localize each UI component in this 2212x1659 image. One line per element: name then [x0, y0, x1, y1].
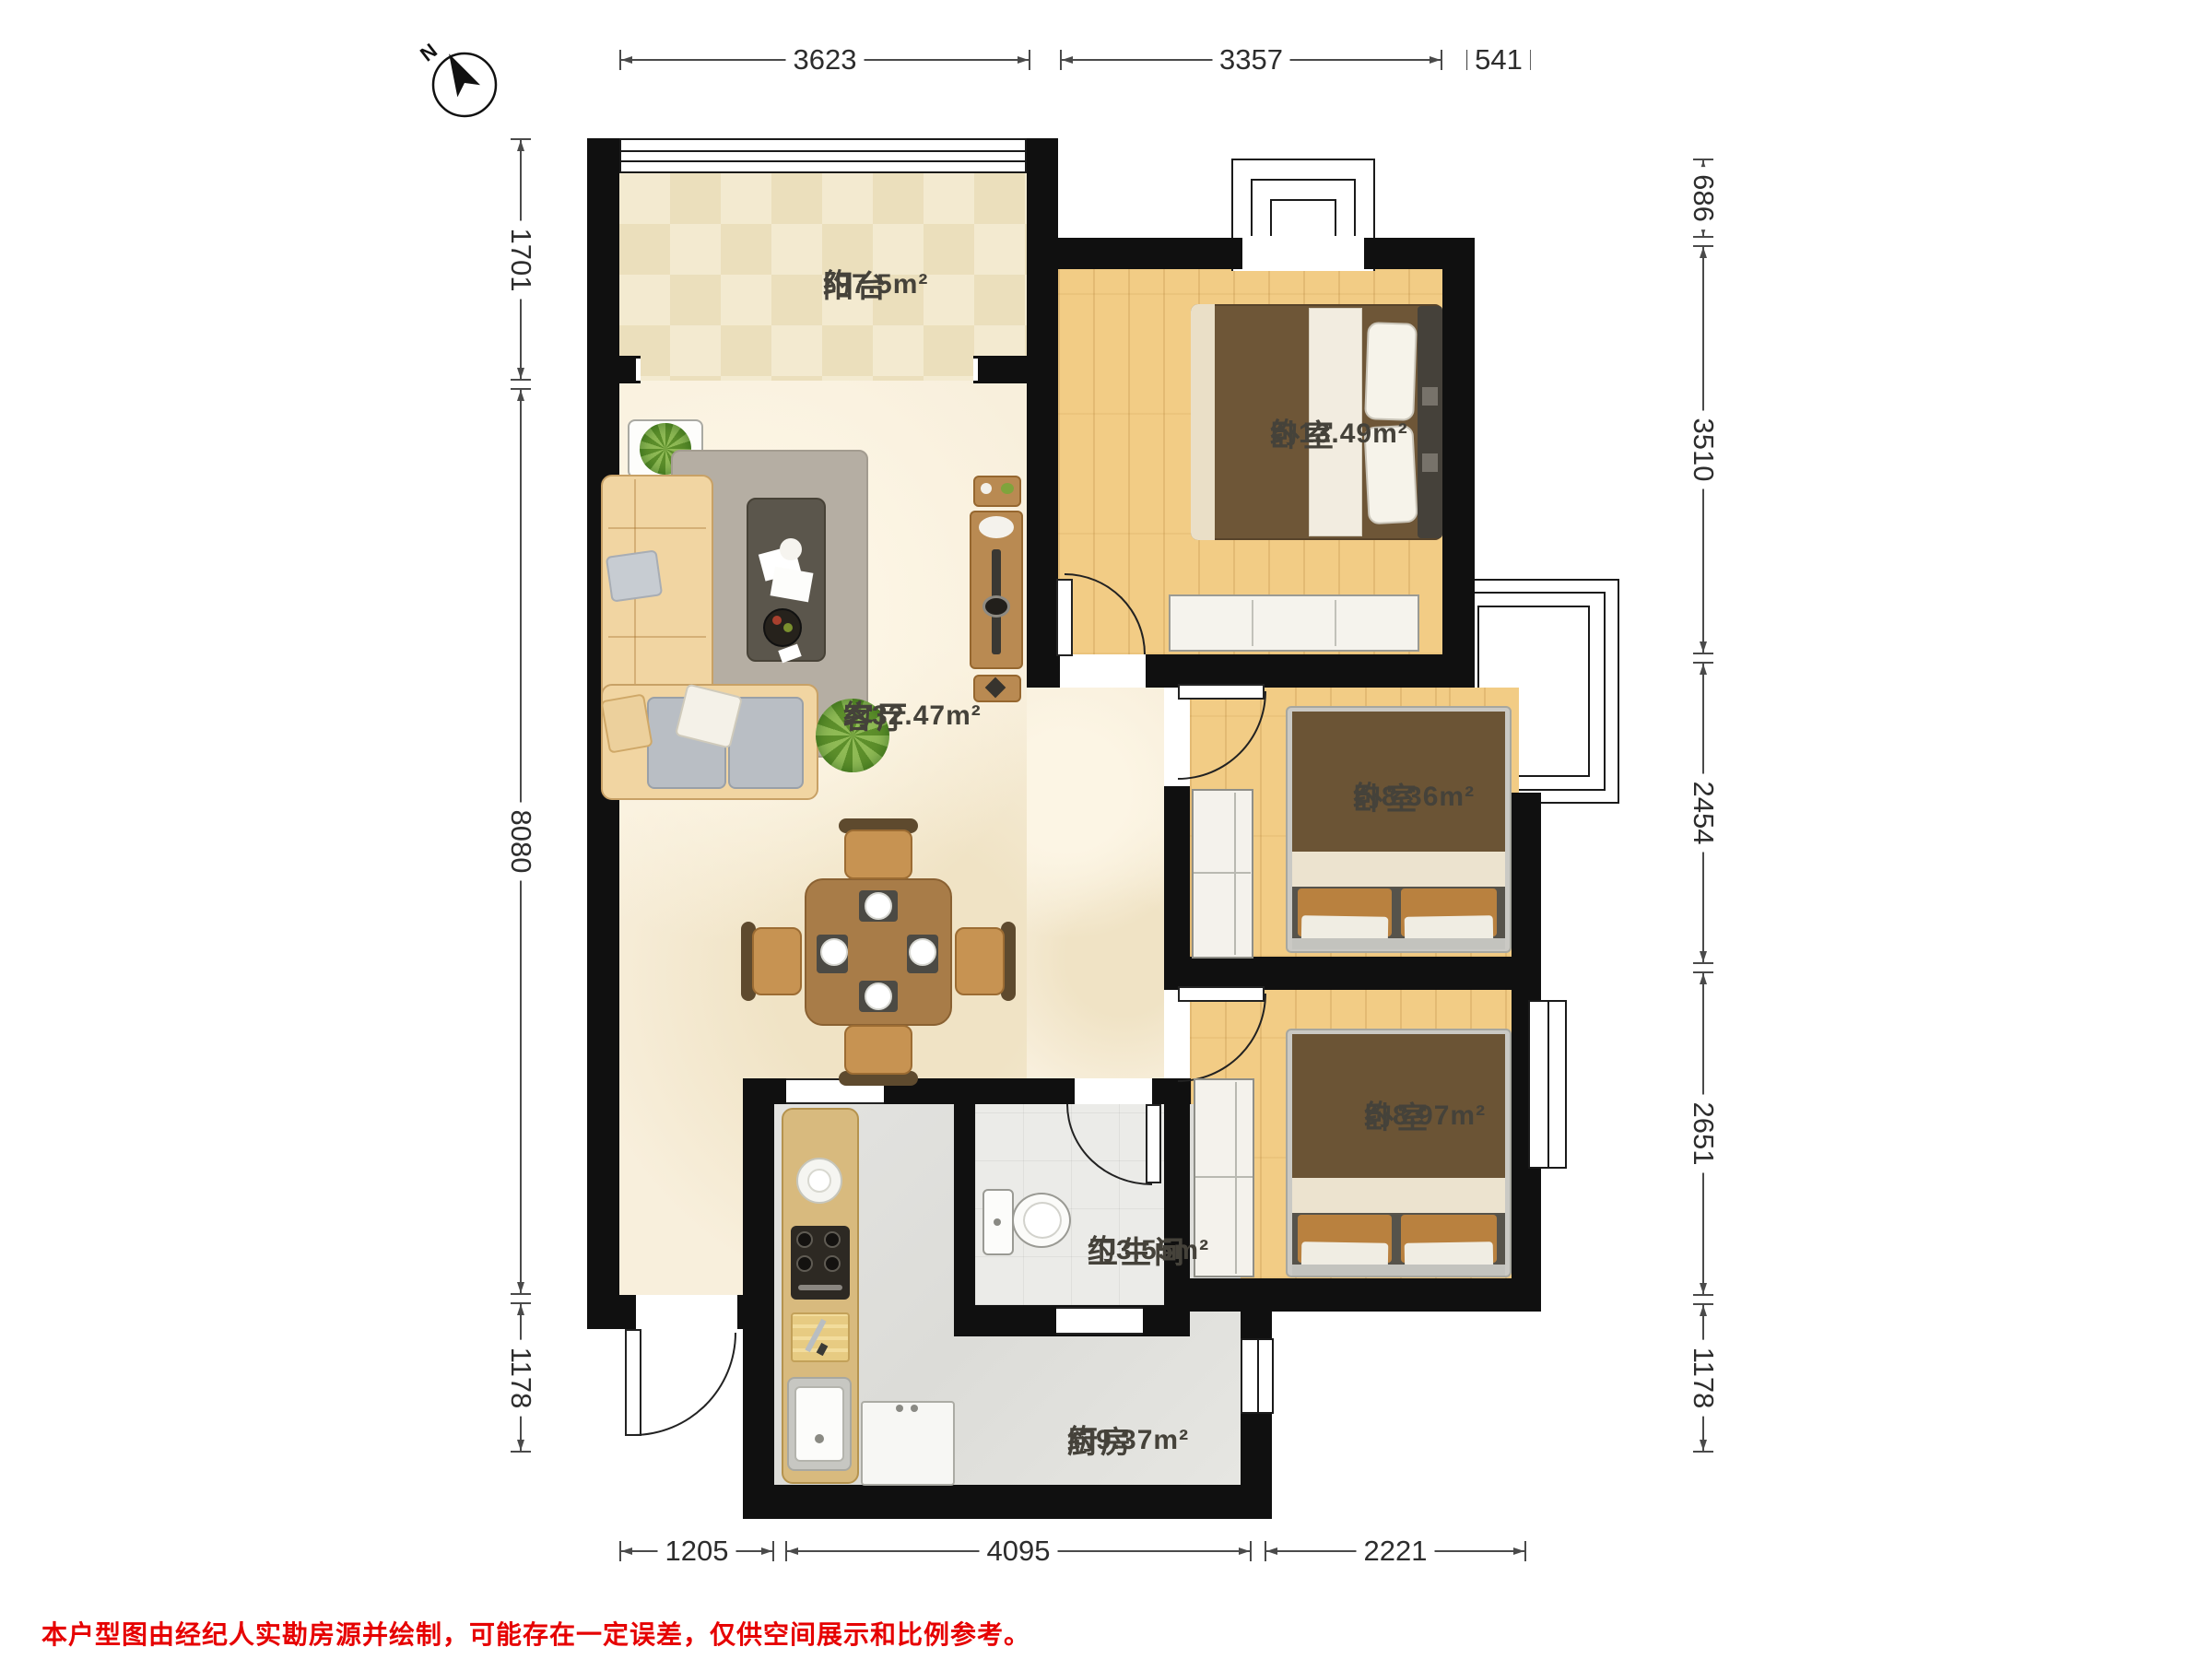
- dining-chair: [752, 927, 802, 995]
- bedroom1-bay-opening: [1242, 236, 1364, 271]
- fridge-handle-icon: [896, 1405, 903, 1412]
- dim-tick: [772, 1541, 774, 1561]
- dim-tick: [1693, 236, 1713, 238]
- dim-tick: [1693, 1294, 1713, 1296]
- dresser-divider: [1252, 600, 1253, 646]
- wall-right-upper: [1442, 238, 1475, 688]
- bathroom-threshold: [1056, 1307, 1143, 1335]
- wall-entry-left: [587, 1295, 636, 1329]
- dim-arrow: [1430, 56, 1441, 64]
- sofa-pillow: [600, 693, 653, 753]
- plate-icon: [820, 938, 848, 966]
- dim-arrow: [1700, 247, 1707, 258]
- coffee-table-cup: [780, 538, 802, 560]
- dim-tick: [1693, 653, 1713, 654]
- wall-balcony-bedroom1: [1027, 138, 1058, 688]
- dim-arrow: [1062, 56, 1073, 64]
- sink-drain-icon: [815, 1434, 824, 1443]
- wall-bedroom3-bottom: [1164, 1278, 1541, 1312]
- bedroom2-bed-footboard: [1292, 938, 1505, 949]
- stub-cap-right: [973, 359, 978, 381]
- dim-arrow: [787, 1547, 798, 1555]
- kitchen-sink-basin: [794, 1386, 844, 1462]
- bedroom1-pillow: [1364, 322, 1418, 421]
- stub-cap-left: [636, 359, 641, 381]
- bedroom2-wardrobe: [1192, 789, 1253, 959]
- wardrobe-door-line: [1234, 793, 1236, 955]
- dim-arrow: [1513, 1547, 1524, 1555]
- wardrobe-split-line: [1194, 872, 1251, 874]
- dim-tick: [1524, 1541, 1526, 1561]
- wall-entry-right: [737, 1295, 774, 1329]
- bedroom3-window: [1528, 1000, 1567, 1169]
- headboard-notch: [1422, 387, 1438, 406]
- plate-icon: [909, 938, 936, 966]
- dim-arrow: [517, 1440, 524, 1451]
- dim-tick: [1693, 1451, 1713, 1453]
- plate-icon: [865, 892, 892, 920]
- dim-arrow: [1700, 1440, 1707, 1451]
- sofa-pillow: [606, 549, 663, 602]
- dim-arrow: [1700, 664, 1707, 675]
- disclaimer-text: 本户型图由经纪人实勘房源并绘制，可能存在一定误差，仅供空间展示和比例参考。: [41, 1615, 1030, 1652]
- sofa-cushion-line: [608, 636, 706, 638]
- toilet-seat: [1023, 1202, 1062, 1239]
- dim-arrow: [1239, 1547, 1250, 1555]
- dim-tick: [511, 379, 531, 381]
- north-arrow-icon: N: [417, 35, 509, 127]
- dim-arrow: [517, 1282, 524, 1293]
- dim-arrow: [1700, 641, 1707, 653]
- dim-tick: [1250, 1541, 1252, 1561]
- tv-speaker-icon: [979, 516, 1014, 538]
- tv-mount-icon: [982, 595, 1010, 618]
- dim-arrow: [517, 140, 524, 151]
- dim-arrow: [1700, 973, 1707, 984]
- wall-bathroom-top: [954, 1078, 1191, 1104]
- bedroom1-dresser: [1169, 594, 1419, 652]
- bedroom1-headboard: [1418, 306, 1442, 538]
- dim-tick: [511, 1451, 531, 1453]
- burner-icon: [796, 1255, 813, 1272]
- bedroom1-door-opening: [1060, 654, 1146, 688]
- dim-arrow: [517, 368, 524, 379]
- dim-arrow: [1018, 56, 1029, 64]
- hallway-floor: [1027, 688, 1164, 1104]
- wall-bathroom-left: [954, 1078, 975, 1336]
- bedroom1-bed-edge: [1191, 304, 1215, 540]
- bathroom-door-opening: [1075, 1078, 1152, 1104]
- dining-chair: [844, 1025, 912, 1075]
- toilet-button-icon: [994, 1218, 1001, 1226]
- dim-tick: [1693, 962, 1713, 964]
- dim-arrow: [1266, 1547, 1277, 1555]
- wall-bedroom2-bottom: [1164, 957, 1541, 990]
- burner-icon: [824, 1231, 841, 1248]
- svg-text:N: N: [417, 39, 441, 65]
- wall-kitchen-bottom: [743, 1485, 1272, 1519]
- dim-arrow: [517, 1304, 524, 1315]
- wall-balcony-stub-left: [587, 356, 641, 383]
- dim-arrow: [1700, 1283, 1707, 1294]
- dining-chair: [844, 829, 912, 879]
- wall-bedroom2-left: [1164, 786, 1190, 957]
- burner-icon: [796, 1231, 813, 1248]
- dim-tick: [511, 1293, 531, 1295]
- bedroom3-bed-footboard: [1292, 1265, 1505, 1276]
- plate-icon: [865, 982, 892, 1010]
- dim-arrow: [1700, 951, 1707, 962]
- bedroom3-bed-sheet: [1292, 1178, 1505, 1213]
- fridge-handle-icon: [911, 1405, 918, 1412]
- dim-tick: [1441, 50, 1442, 70]
- burner-icon: [824, 1255, 841, 1272]
- bowl-flower-icon: [783, 623, 793, 632]
- balcony-window: [619, 138, 1027, 173]
- dim-arrow: [517, 390, 524, 401]
- kitchen-window: [1241, 1338, 1274, 1414]
- dim-arrow: [621, 1547, 632, 1555]
- shelf-plant-icon: [1001, 483, 1014, 494]
- dim-arrow: [621, 56, 632, 64]
- wall-balcony-stub-right: [973, 356, 1027, 383]
- floor-plan: 阳台 约7.5m² 客厅 约32.47m² 卧室 约13.49m² 卧室 约8.…: [0, 0, 2212, 1659]
- bowl-flower-icon: [772, 616, 782, 625]
- headboard-notch: [1422, 453, 1438, 472]
- dim-tick: [1029, 50, 1030, 70]
- coffee-table-bowl: [763, 608, 802, 647]
- compass: N: [417, 35, 509, 127]
- dresser-divider: [1335, 600, 1336, 646]
- dining-chair: [955, 927, 1005, 995]
- dim-arrow: [1700, 1305, 1707, 1316]
- dim-arrow: [761, 1547, 772, 1555]
- bedroom2-bed-sheet: [1292, 852, 1505, 887]
- shelf-decor-icon: [981, 483, 992, 494]
- wardrobe-door-line: [1235, 1082, 1237, 1274]
- stove-controls: [798, 1285, 842, 1290]
- sofa-cushion-line: [608, 527, 706, 529]
- entry-door-swing: [633, 1333, 736, 1436]
- fridge: [861, 1401, 955, 1486]
- kitchen-basin-inner: [807, 1169, 831, 1193]
- wardrobe-split-line: [1195, 1176, 1253, 1178]
- wall-bathroom-right: [1165, 1104, 1190, 1305]
- tv-shelf-top: [973, 476, 1021, 507]
